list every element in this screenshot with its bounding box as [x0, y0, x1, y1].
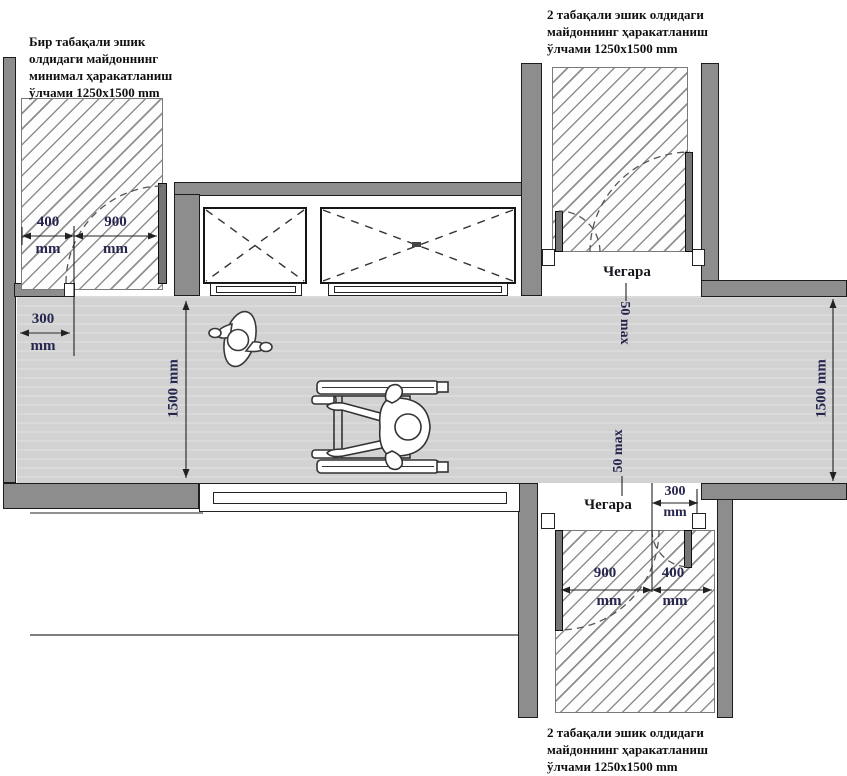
boundary-label-bottom: Чегара [578, 496, 638, 514]
annotation-top-right: 2 табақали эшик олдидаги майдоннинг ҳара… [547, 6, 708, 57]
dim-threshold-top: 50 max [616, 293, 632, 353]
wall-bottom-right-room-left [518, 483, 538, 718]
elevator-1-sill-inner [216, 286, 296, 293]
elevator-2-sill-inner [334, 286, 502, 293]
door-leaf-top-right-large [685, 152, 693, 252]
dim-300-value: 300 [16, 310, 70, 328]
annotation-line: ўлчами 1250x1500 mm [547, 758, 708, 775]
annotation-bottom-right: 2 табақали эшик олдидаги майдоннинг ҳара… [547, 724, 708, 775]
annotation-line: ўлчами 1250x1500 mm [29, 84, 172, 101]
floor-plan-diagram: Бир табақали эшик олдидаги майдоннинг ми… [0, 0, 847, 776]
annotation-line: минимал ҳаракатланиш [29, 67, 172, 84]
door-leaf-top-right-small [555, 211, 563, 252]
door-leaf-bottom-right-large [555, 530, 563, 631]
wall-left-vertical [3, 57, 16, 483]
dim-br-400-value: 400 [642, 564, 704, 582]
dim-threshold-bottom: 50 max [611, 420, 627, 482]
dim-corridor-width-right: 1500 mm [813, 344, 830, 434]
jamb-top-left-door [64, 283, 75, 297]
dim-900-unit: mm [74, 240, 157, 258]
annotation-line: майдоннинг ҳаракатланиш [547, 741, 708, 758]
dim-br-900-value: 900 [565, 564, 645, 582]
annotation-line: олдидаги майдоннинг [29, 50, 172, 67]
door-leaf-top-left [158, 183, 167, 284]
annotation-line: 2 табақали эшик олдидаги [547, 6, 708, 23]
annotation-line: 2 табақали эшик олдидаги [547, 724, 708, 741]
wall-bottom-left-block [3, 483, 199, 509]
dim-400-value: 400 [22, 213, 74, 231]
wall-elevator-top [174, 182, 522, 196]
annotation-line: Бир табақали эшик [29, 33, 172, 50]
wall-elevator-left [174, 194, 200, 296]
dim-400-unit: mm [22, 240, 74, 258]
lower-room-window-sill [213, 492, 507, 504]
dim-br-300-value: 300 [652, 484, 698, 500]
jamb-bottom-right-door-left [541, 513, 555, 529]
maneuver-area-top-left [21, 98, 163, 290]
jamb-top-right-door-right [692, 249, 705, 266]
annotation-top-left: Бир табақали эшик олдидаги майдоннинг ми… [29, 33, 172, 101]
jamb-top-right-door-left [542, 249, 555, 266]
dim-300-unit: mm [16, 337, 70, 355]
dim-corridor-width-left: 1500 mm [165, 344, 182, 434]
elevator-car-2 [320, 207, 516, 284]
wall-top-right-horizontal [701, 280, 847, 297]
corridor-floor [17, 296, 847, 483]
door-leaf-bottom-right-small [684, 530, 692, 568]
annotation-line: ўлчами 1250x1500 mm [547, 40, 708, 57]
boundary-label-top: Чегара [597, 263, 657, 281]
annotation-line: майдоннинг ҳаракатланиш [547, 23, 708, 40]
wall-bottom-right-horizontal [701, 483, 847, 500]
wall-top-right-room-left [521, 63, 542, 296]
wall-bottom-right-room-right [717, 499, 733, 718]
dim-br-300-unit: mm [652, 505, 698, 521]
maneuver-area-top-right [552, 67, 688, 252]
dim-900-value: 900 [74, 213, 157, 231]
dim-br-900-unit: mm [569, 592, 649, 610]
elevator-car-1 [203, 207, 307, 284]
dim-br-400-unit: mm [644, 592, 706, 610]
